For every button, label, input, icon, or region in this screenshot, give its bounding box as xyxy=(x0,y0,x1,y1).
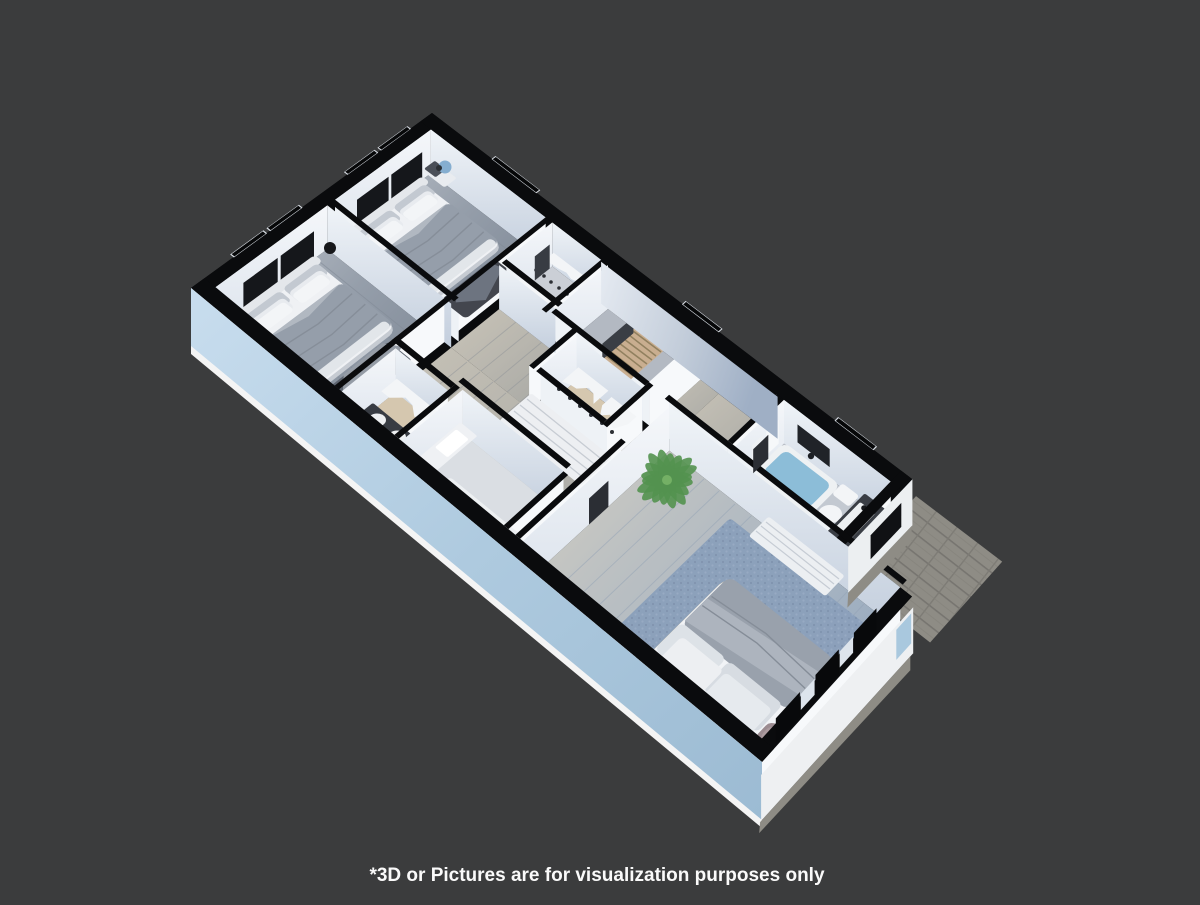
svg-text:*3D or Pictures are for visual: *3D or Pictures are for visualization pu… xyxy=(369,865,825,886)
